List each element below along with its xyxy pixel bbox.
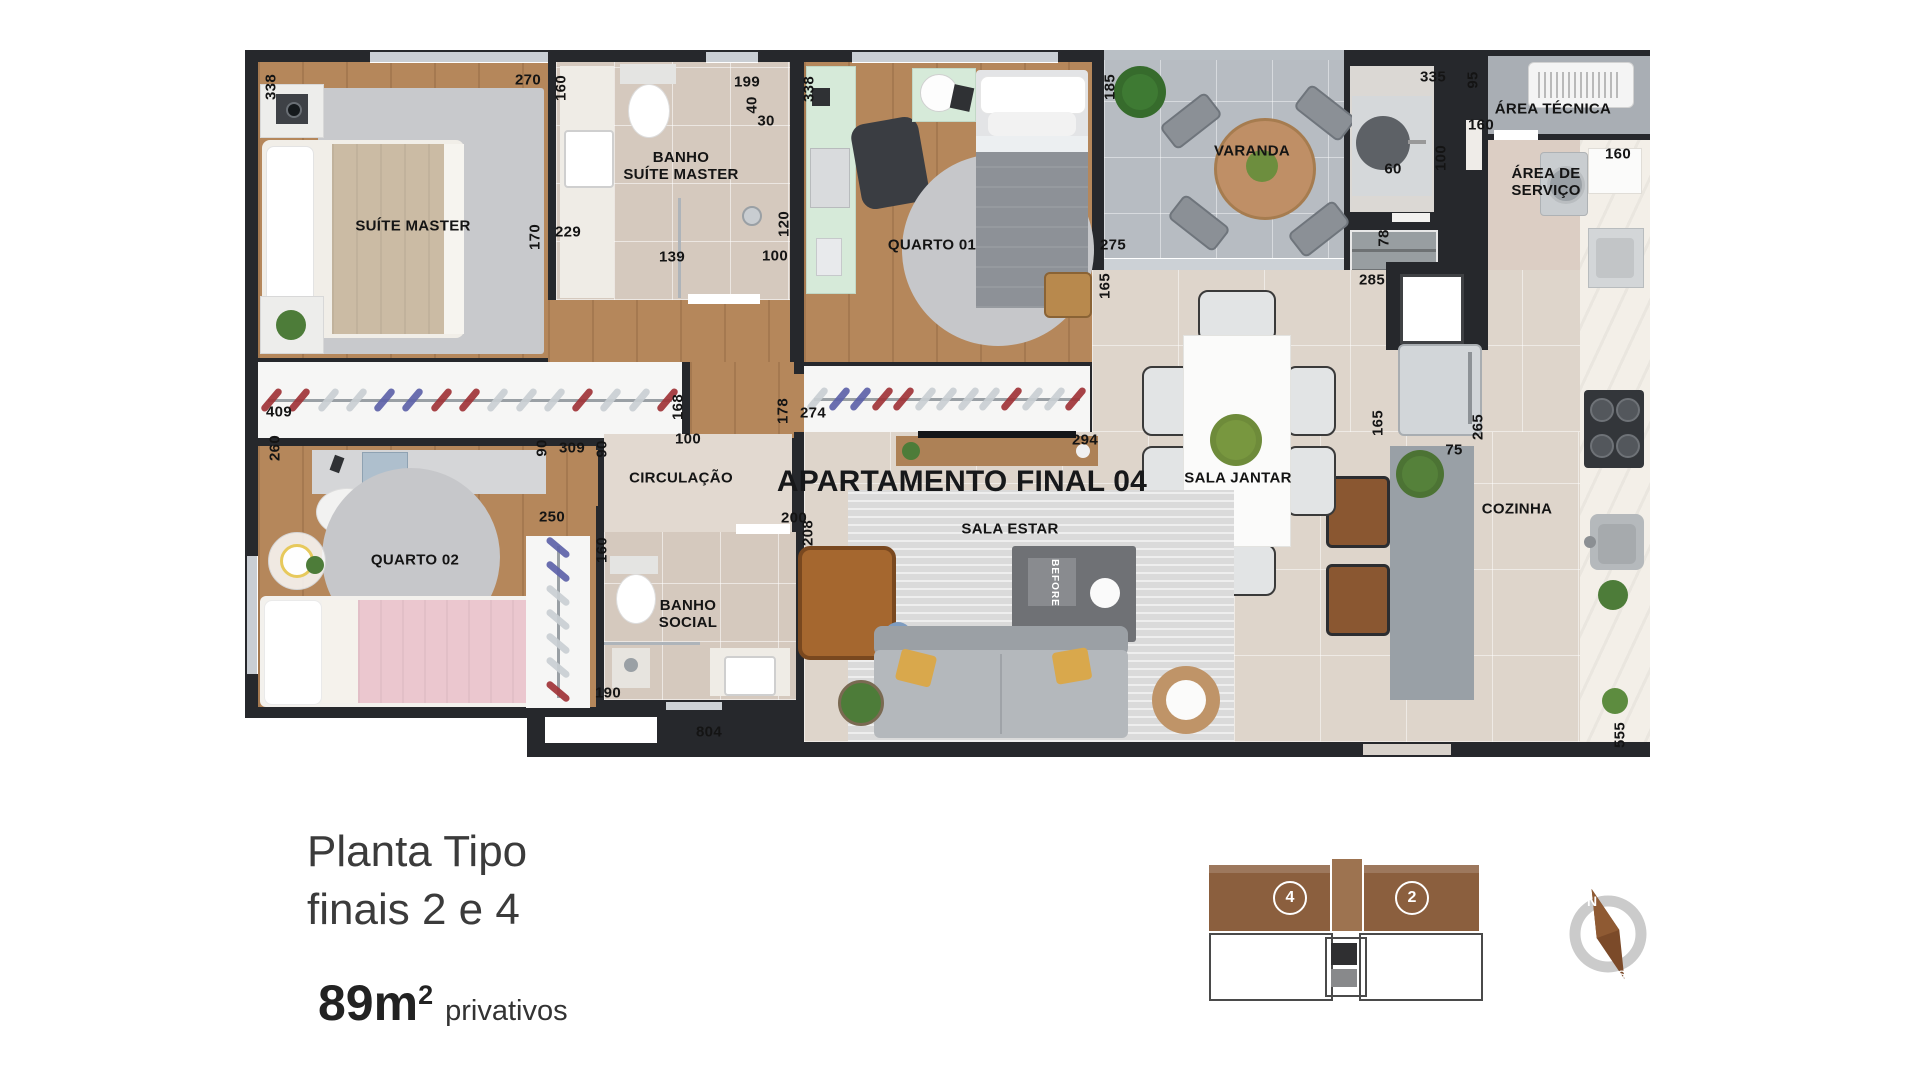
lavabo-sink bbox=[1356, 116, 1410, 170]
suite-bed-blanket bbox=[332, 144, 444, 334]
hanger-icon bbox=[999, 386, 1022, 412]
coffee-table-bowl bbox=[1090, 578, 1120, 608]
dining-centerpiece bbox=[1210, 414, 1262, 466]
area-superscript: 2 bbox=[418, 982, 433, 1009]
kitchen-plant-2 bbox=[1602, 688, 1628, 714]
hanger-icon bbox=[373, 387, 396, 413]
quarto01-door bbox=[794, 374, 804, 432]
hanger-icon bbox=[892, 386, 915, 412]
stool-2 bbox=[1326, 564, 1390, 636]
banho-suite-sink bbox=[564, 130, 614, 188]
suite-closet bbox=[258, 362, 682, 438]
quarto01-window bbox=[852, 52, 1058, 63]
burner-2 bbox=[1616, 398, 1640, 422]
banho-suite-toilet-bowl bbox=[628, 84, 670, 138]
sofa-divider bbox=[1000, 654, 1002, 734]
washer-door bbox=[1547, 166, 1585, 204]
hanger-icon bbox=[514, 387, 537, 413]
hanger-icon bbox=[978, 386, 1001, 412]
quarto01-keyboard bbox=[810, 148, 850, 208]
keyplan-unit-2: 2 bbox=[1395, 881, 1429, 915]
hanger-icon bbox=[956, 386, 979, 412]
quarto01-closet bbox=[804, 366, 1090, 432]
ac-grill bbox=[1538, 72, 1622, 98]
entry-door bbox=[545, 717, 657, 743]
banho-social-sink bbox=[724, 656, 776, 696]
hanger-icon bbox=[288, 387, 311, 413]
banho-suite-shower-head bbox=[742, 206, 762, 226]
living-plant bbox=[838, 680, 884, 726]
caption-line-1: Planta Tipo bbox=[307, 826, 527, 879]
quarto02-pillows bbox=[264, 600, 322, 705]
keyplan-unit-outline-right bbox=[1359, 933, 1483, 1001]
keyplan-unit-outline-left bbox=[1209, 933, 1333, 1001]
quarto01-pillow2 bbox=[988, 112, 1076, 136]
banho-social-door bbox=[736, 524, 790, 534]
banho-social-drain bbox=[624, 658, 638, 672]
suite-bed-fold bbox=[444, 144, 464, 334]
lavabo-door bbox=[1392, 213, 1430, 222]
banho-suite-window bbox=[706, 52, 758, 63]
keyplan-core-top bbox=[1330, 859, 1364, 931]
hanger-icon bbox=[545, 584, 571, 607]
banho-social-toilet-tank bbox=[610, 556, 658, 574]
tv bbox=[918, 431, 1076, 438]
circulacao-floor bbox=[604, 434, 792, 532]
laundry-tank-basin bbox=[1596, 238, 1634, 278]
hanger-icon bbox=[849, 386, 872, 412]
hall-floor-2 bbox=[690, 362, 794, 438]
hanger-icon bbox=[401, 387, 424, 413]
varanda-plant bbox=[1114, 66, 1166, 118]
hanger-icon bbox=[656, 387, 679, 413]
hanger-icon bbox=[545, 632, 571, 655]
quarto01-desk-item2 bbox=[816, 238, 842, 276]
servico-shelf-box bbox=[1588, 148, 1642, 194]
sideboard-plant bbox=[902, 442, 920, 460]
area-suffix: privativos bbox=[445, 997, 568, 1026]
compass-icon: N S bbox=[1560, 882, 1656, 988]
sideboard-vase bbox=[1076, 444, 1090, 458]
decor-book-label: BEFORE bbox=[1049, 559, 1059, 607]
hanger-icon bbox=[571, 387, 594, 413]
hanger-icon bbox=[545, 560, 571, 583]
suite-plant bbox=[276, 310, 306, 340]
dining-chair-right1 bbox=[1286, 366, 1336, 436]
quarto01-desk-item bbox=[812, 88, 830, 106]
apartment-title: APARTAMENTO FINAL 04 bbox=[777, 467, 1147, 497]
hanger-icon bbox=[545, 680, 571, 703]
quarto01-fold bbox=[976, 136, 1088, 152]
dining-chair-top bbox=[1198, 290, 1276, 342]
quarto01-bench bbox=[1044, 272, 1092, 318]
hanger-icon bbox=[827, 386, 850, 412]
hanger-icon bbox=[1042, 386, 1065, 412]
suite-decor-dot bbox=[286, 102, 302, 118]
banho-suite-door bbox=[688, 294, 760, 304]
hanger-icon bbox=[599, 387, 622, 413]
burner-1 bbox=[1590, 398, 1614, 422]
keyplan-elevator bbox=[1331, 943, 1357, 965]
hanger-icon bbox=[935, 386, 958, 412]
banho-suite-toilet-tank bbox=[620, 64, 676, 84]
kitchen-plant-1 bbox=[1598, 580, 1628, 610]
sofa-pillow-2 bbox=[1051, 647, 1092, 685]
compass-south-label: S bbox=[1618, 969, 1625, 981]
hanger-icon bbox=[260, 387, 283, 413]
tv-sideboard bbox=[896, 436, 1098, 466]
varanda-centerpiece bbox=[1246, 150, 1278, 182]
banho-social-glass bbox=[604, 642, 700, 645]
quarto02-shoe-rack bbox=[526, 536, 590, 708]
quarto02-window bbox=[247, 556, 258, 674]
quarto01-pillow1 bbox=[980, 76, 1086, 114]
bottom-right-opening bbox=[1363, 744, 1451, 755]
suite-window bbox=[370, 52, 548, 63]
hanger-icon bbox=[345, 387, 368, 413]
caption-area: 89m2 privativos bbox=[318, 978, 568, 1028]
keyplan-unit-4: 4 bbox=[1273, 881, 1307, 915]
hanger-icon bbox=[543, 387, 566, 413]
compass-north-label: N bbox=[1587, 893, 1597, 909]
quarto02-sheet bbox=[322, 600, 358, 703]
lavabo-faucet bbox=[1408, 140, 1426, 144]
hanger-icon bbox=[628, 387, 651, 413]
hanger-icon bbox=[1021, 386, 1044, 412]
side-table-tray bbox=[1166, 680, 1206, 720]
banho-social-toilet-bowl bbox=[616, 574, 656, 624]
hanger-icon bbox=[545, 536, 571, 559]
caption-line-2: finais 2 e 4 bbox=[307, 884, 520, 937]
hanger-icon bbox=[913, 386, 936, 412]
servico-door bbox=[1494, 130, 1538, 140]
kitchen-sink-basin bbox=[1598, 524, 1636, 564]
hanger-icon bbox=[1064, 386, 1087, 412]
burner-4 bbox=[1616, 434, 1640, 458]
hanger-icon bbox=[486, 387, 509, 413]
fridge-handle bbox=[1468, 352, 1472, 424]
hanger-icon bbox=[806, 386, 829, 412]
floor-plan-sheet: BEFORE 338270160199403033818533595160601… bbox=[0, 0, 1920, 1080]
kitchen-faucet bbox=[1584, 536, 1596, 548]
hanger-icon bbox=[870, 386, 893, 412]
quarto02-door bbox=[588, 450, 598, 506]
shaft-door bbox=[1466, 120, 1482, 170]
quarto02-blanket bbox=[358, 600, 552, 703]
hanger-icon bbox=[545, 608, 571, 631]
dining-chair-right2 bbox=[1286, 446, 1336, 516]
burner-3 bbox=[1590, 434, 1614, 458]
banho-social-window bbox=[666, 702, 722, 710]
pantry-box bbox=[1400, 274, 1464, 344]
keyplan-stairs bbox=[1331, 969, 1357, 987]
hanger-icon bbox=[316, 387, 339, 413]
quarto02-plant bbox=[306, 556, 324, 574]
hanger-icon bbox=[545, 656, 571, 679]
hanger-icon bbox=[430, 387, 453, 413]
hall-floor bbox=[548, 300, 790, 362]
hanger-icon bbox=[458, 387, 481, 413]
banho-suite-shower-glass bbox=[678, 198, 681, 298]
island-plant bbox=[1396, 450, 1444, 498]
keyplan: 4 2 bbox=[1203, 857, 1486, 1009]
area-value: 89m bbox=[318, 978, 418, 1028]
